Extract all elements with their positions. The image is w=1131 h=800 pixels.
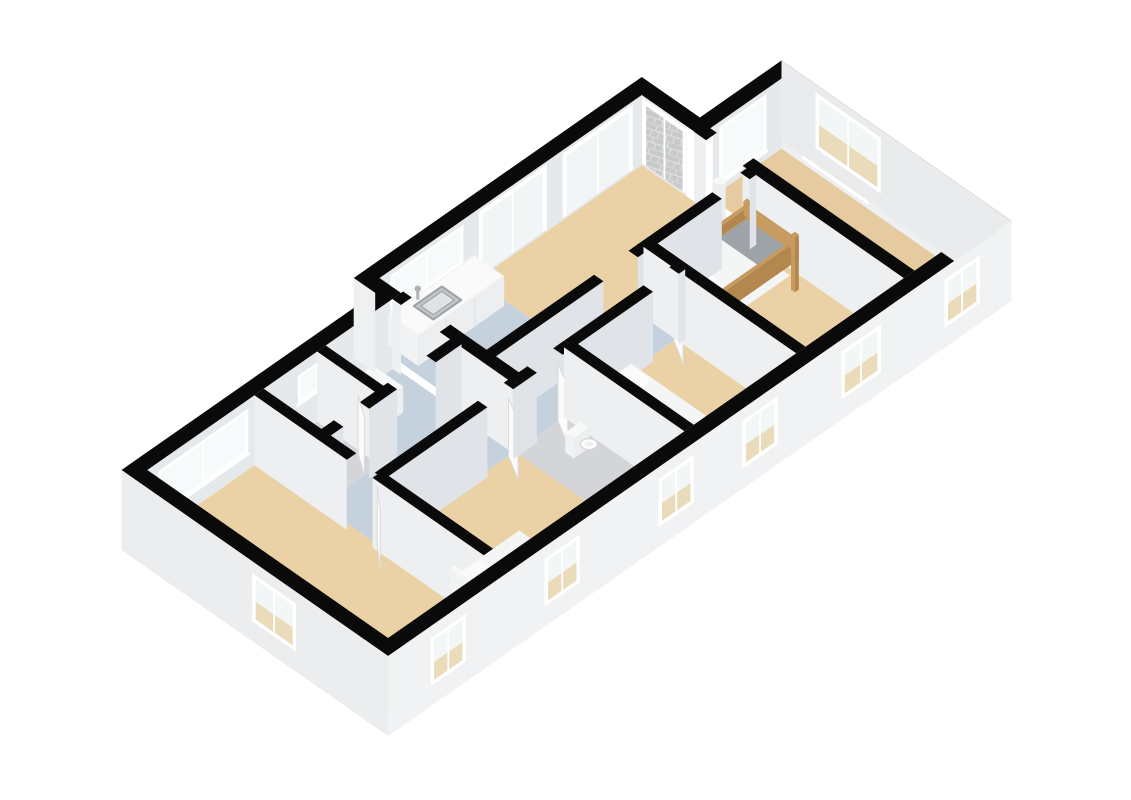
- floor-plan-3d: [0, 0, 1131, 800]
- facade-step: [354, 278, 376, 373]
- floor-plan-page: [0, 0, 1131, 800]
